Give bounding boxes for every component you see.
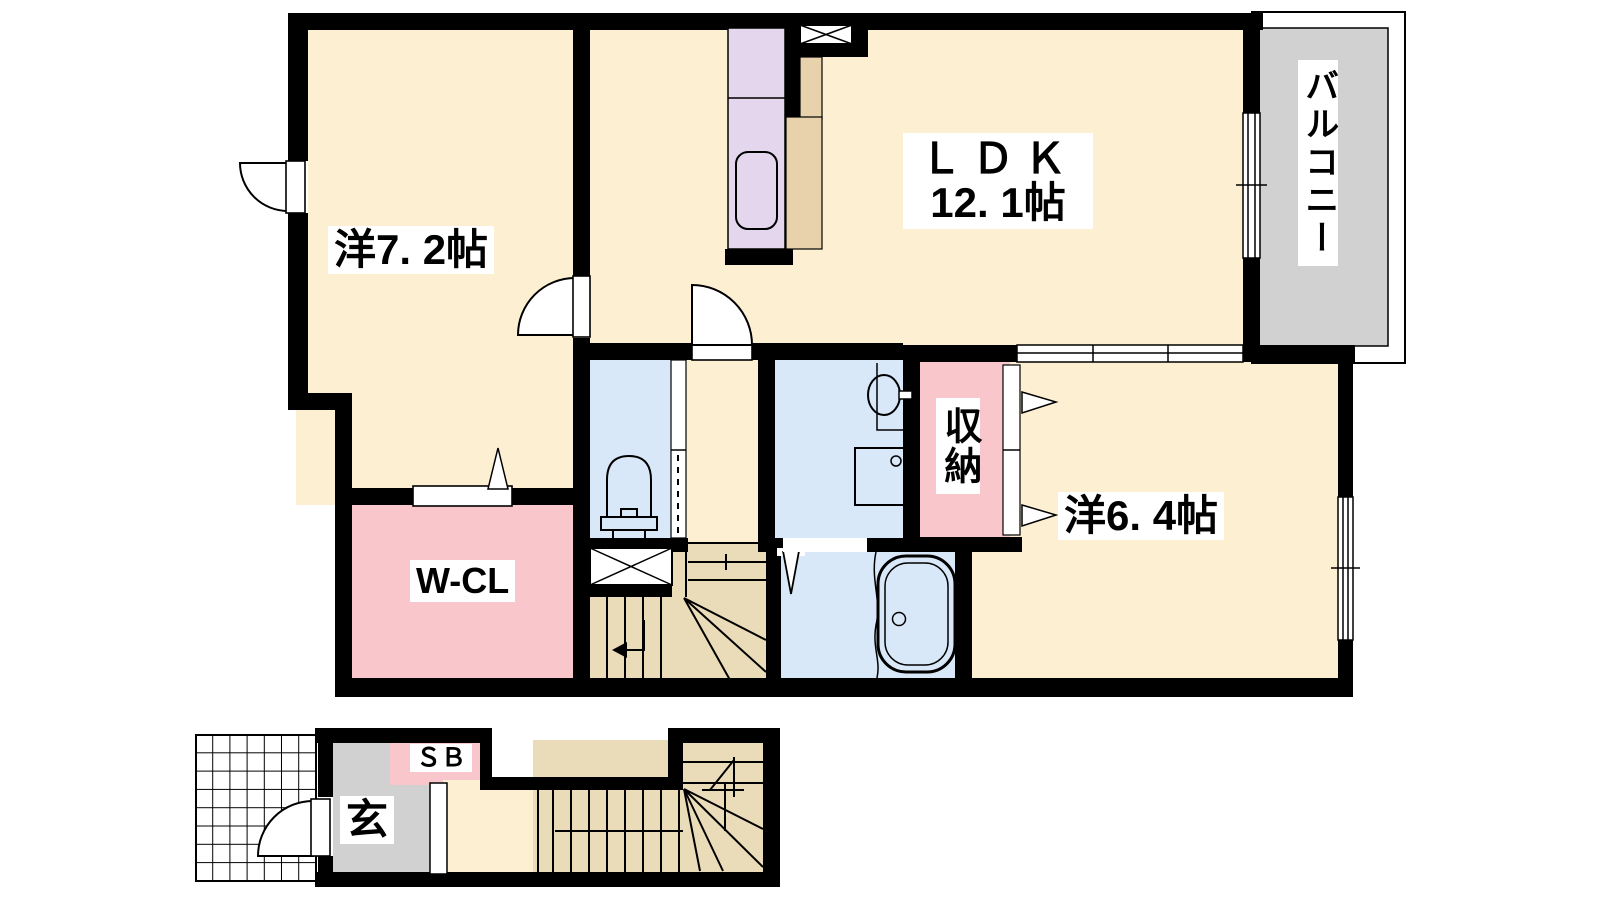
label-ldk-name: ＬＤＫ: [903, 137, 1093, 181]
washroom-opening: [783, 538, 867, 552]
floor-entry-hall: [443, 780, 538, 875]
kitchen-counter-upper: [800, 57, 822, 119]
label-ldk: ＬＤＫ 12. 1帖: [903, 133, 1093, 229]
floor-stairs-lower: [533, 740, 766, 875]
label-balcony: バルコニー: [1298, 60, 1338, 266]
label-storage: 収納: [936, 398, 980, 494]
pipe-shaft-icon: [590, 548, 672, 585]
range-hood-shaft-icon: [800, 25, 852, 44]
floorplan-drawing: [0, 0, 1600, 900]
label-west-room-1: 洋7. 2帖: [328, 226, 494, 274]
west-room-1-exterior-door: [240, 161, 308, 213]
label-entrance: 玄: [340, 796, 394, 844]
label-west-room-2: 洋6. 4帖: [1058, 492, 1224, 540]
label-shoe-box: ＳＢ: [410, 744, 472, 772]
label-ldk-size: 12. 1帖: [903, 181, 1093, 225]
ldk-sliding-partition: [1017, 345, 1243, 362]
floorplan-canvas: 洋7. 2帖 ＬＤＫ 12. 1帖 洋6. 4帖 バルコニー 収納 W-CL 玄…: [0, 0, 1600, 900]
entry-hall-divider: [430, 783, 447, 874]
label-walk-in-closet: W-CL: [410, 560, 515, 602]
kitchen-counter-lower: [786, 117, 822, 249]
floor-washroom: [768, 356, 908, 546]
toilet-pocket-door: [671, 360, 686, 538]
floor-hallway: [686, 356, 766, 548]
kitchen: [728, 28, 822, 249]
